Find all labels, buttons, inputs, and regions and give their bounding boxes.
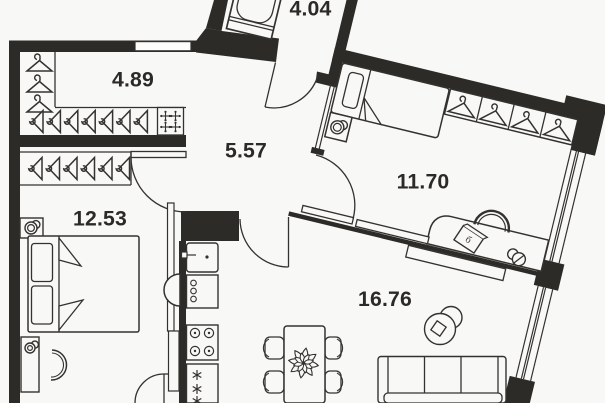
svg-text:5.57: 5.57 — [225, 140, 267, 163]
svg-text:4.04: 4.04 — [289, 0, 331, 21]
svg-text:12.53: 12.53 — [73, 208, 127, 231]
svg-text:16.76: 16.76 — [358, 288, 412, 311]
svg-text:11.70: 11.70 — [397, 171, 450, 194]
svg-text:4.89: 4.89 — [112, 69, 154, 92]
